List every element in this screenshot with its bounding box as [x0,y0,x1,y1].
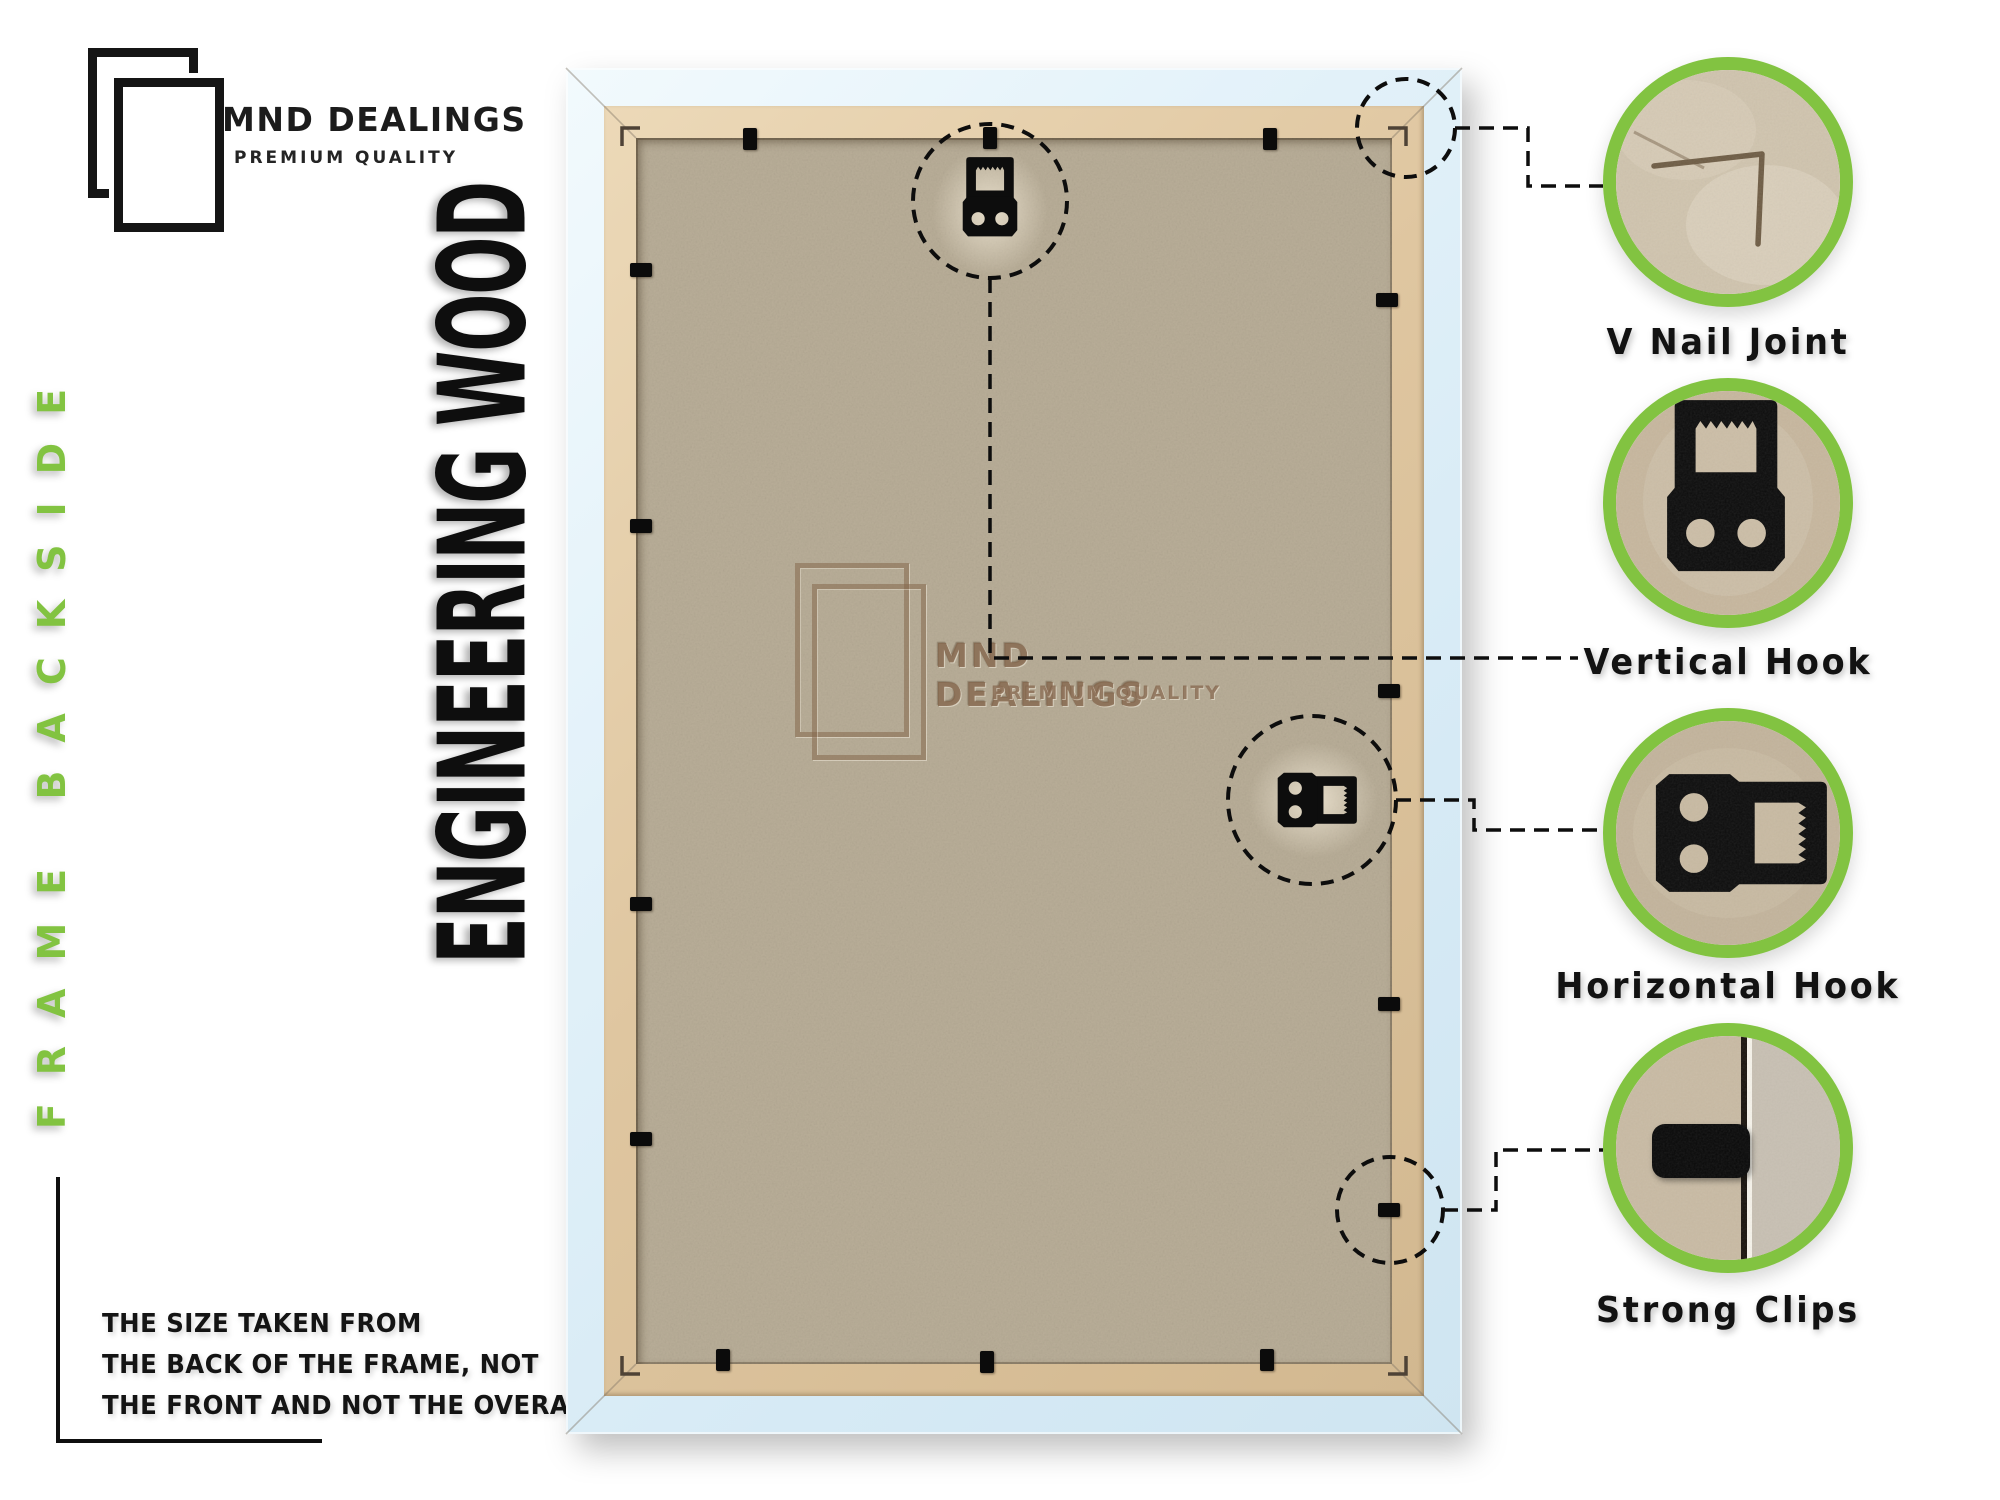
callout-label-v-nail-joint: V Nail Joint [1523,322,1932,363]
callout-circle-vertical-hook [1603,378,1853,628]
engineering-wood-headline: ENGINEERING WOOD [414,205,554,940]
callout-label-strong-clips: Strong Clips [1523,1290,1932,1331]
callout-circle-horizontal-hook [1603,708,1853,958]
watermark: MND DEALINGS PREMIUM QUALITY [795,556,1235,766]
watermark-brand-tagline: PREMIUM QUALITY [991,682,1221,704]
vertical-hook-detail [1616,391,1840,615]
mdf-backboard: MND DEALINGS PREMIUM QUALITY [636,138,1392,1364]
clip [630,519,652,533]
horizontal-hook-photo [1616,721,1840,945]
clip [630,1132,652,1146]
v-nail-joint-detail [1616,70,1840,294]
callout-circle-strong-clips [1603,1023,1853,1273]
frame-backside-text: FRAME BACKSIDE [30,361,74,1129]
clip [980,1351,994,1373]
clip [1263,128,1277,150]
clip [743,128,757,150]
brand-tagline: PREMIUM QUALITY [234,148,458,168]
frame-backside-vertical-label: FRAME BACKSIDE [4,330,100,1160]
note-bracket-vertical-line [56,1177,60,1443]
clip [1378,1203,1400,1217]
frame-wood-lip: MND DEALINGS PREMIUM QUALITY [604,106,1424,1396]
callout-circle-v-nail-joint [1603,57,1853,307]
vertical-hook-photo [1616,391,1840,615]
frame-photo: MND DEALINGS PREMIUM QUALITY [566,68,1462,1434]
clip [1260,1349,1274,1371]
clip [1376,293,1398,307]
horizontal-hook-detail [1616,721,1840,945]
clip [1378,997,1400,1011]
logo-frame-front-icon [114,78,224,232]
clip [716,1349,730,1371]
watermark-frame-front-icon [812,584,926,760]
clip [1378,684,1400,698]
vertical-hook-emboss [932,146,1048,276]
horizontal-hook-emboss [1248,742,1378,858]
engineering-wood-text: ENGINEERING WOOD [415,182,554,964]
clip [983,127,997,149]
clip [630,897,652,911]
strong-clips-photo [1616,1036,1840,1260]
brand-name: MND DEALINGS [222,100,527,139]
note-bracket-horizontal-line [56,1439,322,1443]
callout-label-horizontal-hook: Horizontal Hook [1523,966,1932,1007]
strong-clips-texture [1616,1036,1840,1260]
product-infographic: MND DEALINGS PREMIUM QUALITY FRAME BACKS… [0,0,2000,1500]
v-nail-joint-photo [1616,70,1840,294]
callout-label-vertical-hook: Vertical Hook [1523,642,1932,683]
clip [630,263,652,277]
